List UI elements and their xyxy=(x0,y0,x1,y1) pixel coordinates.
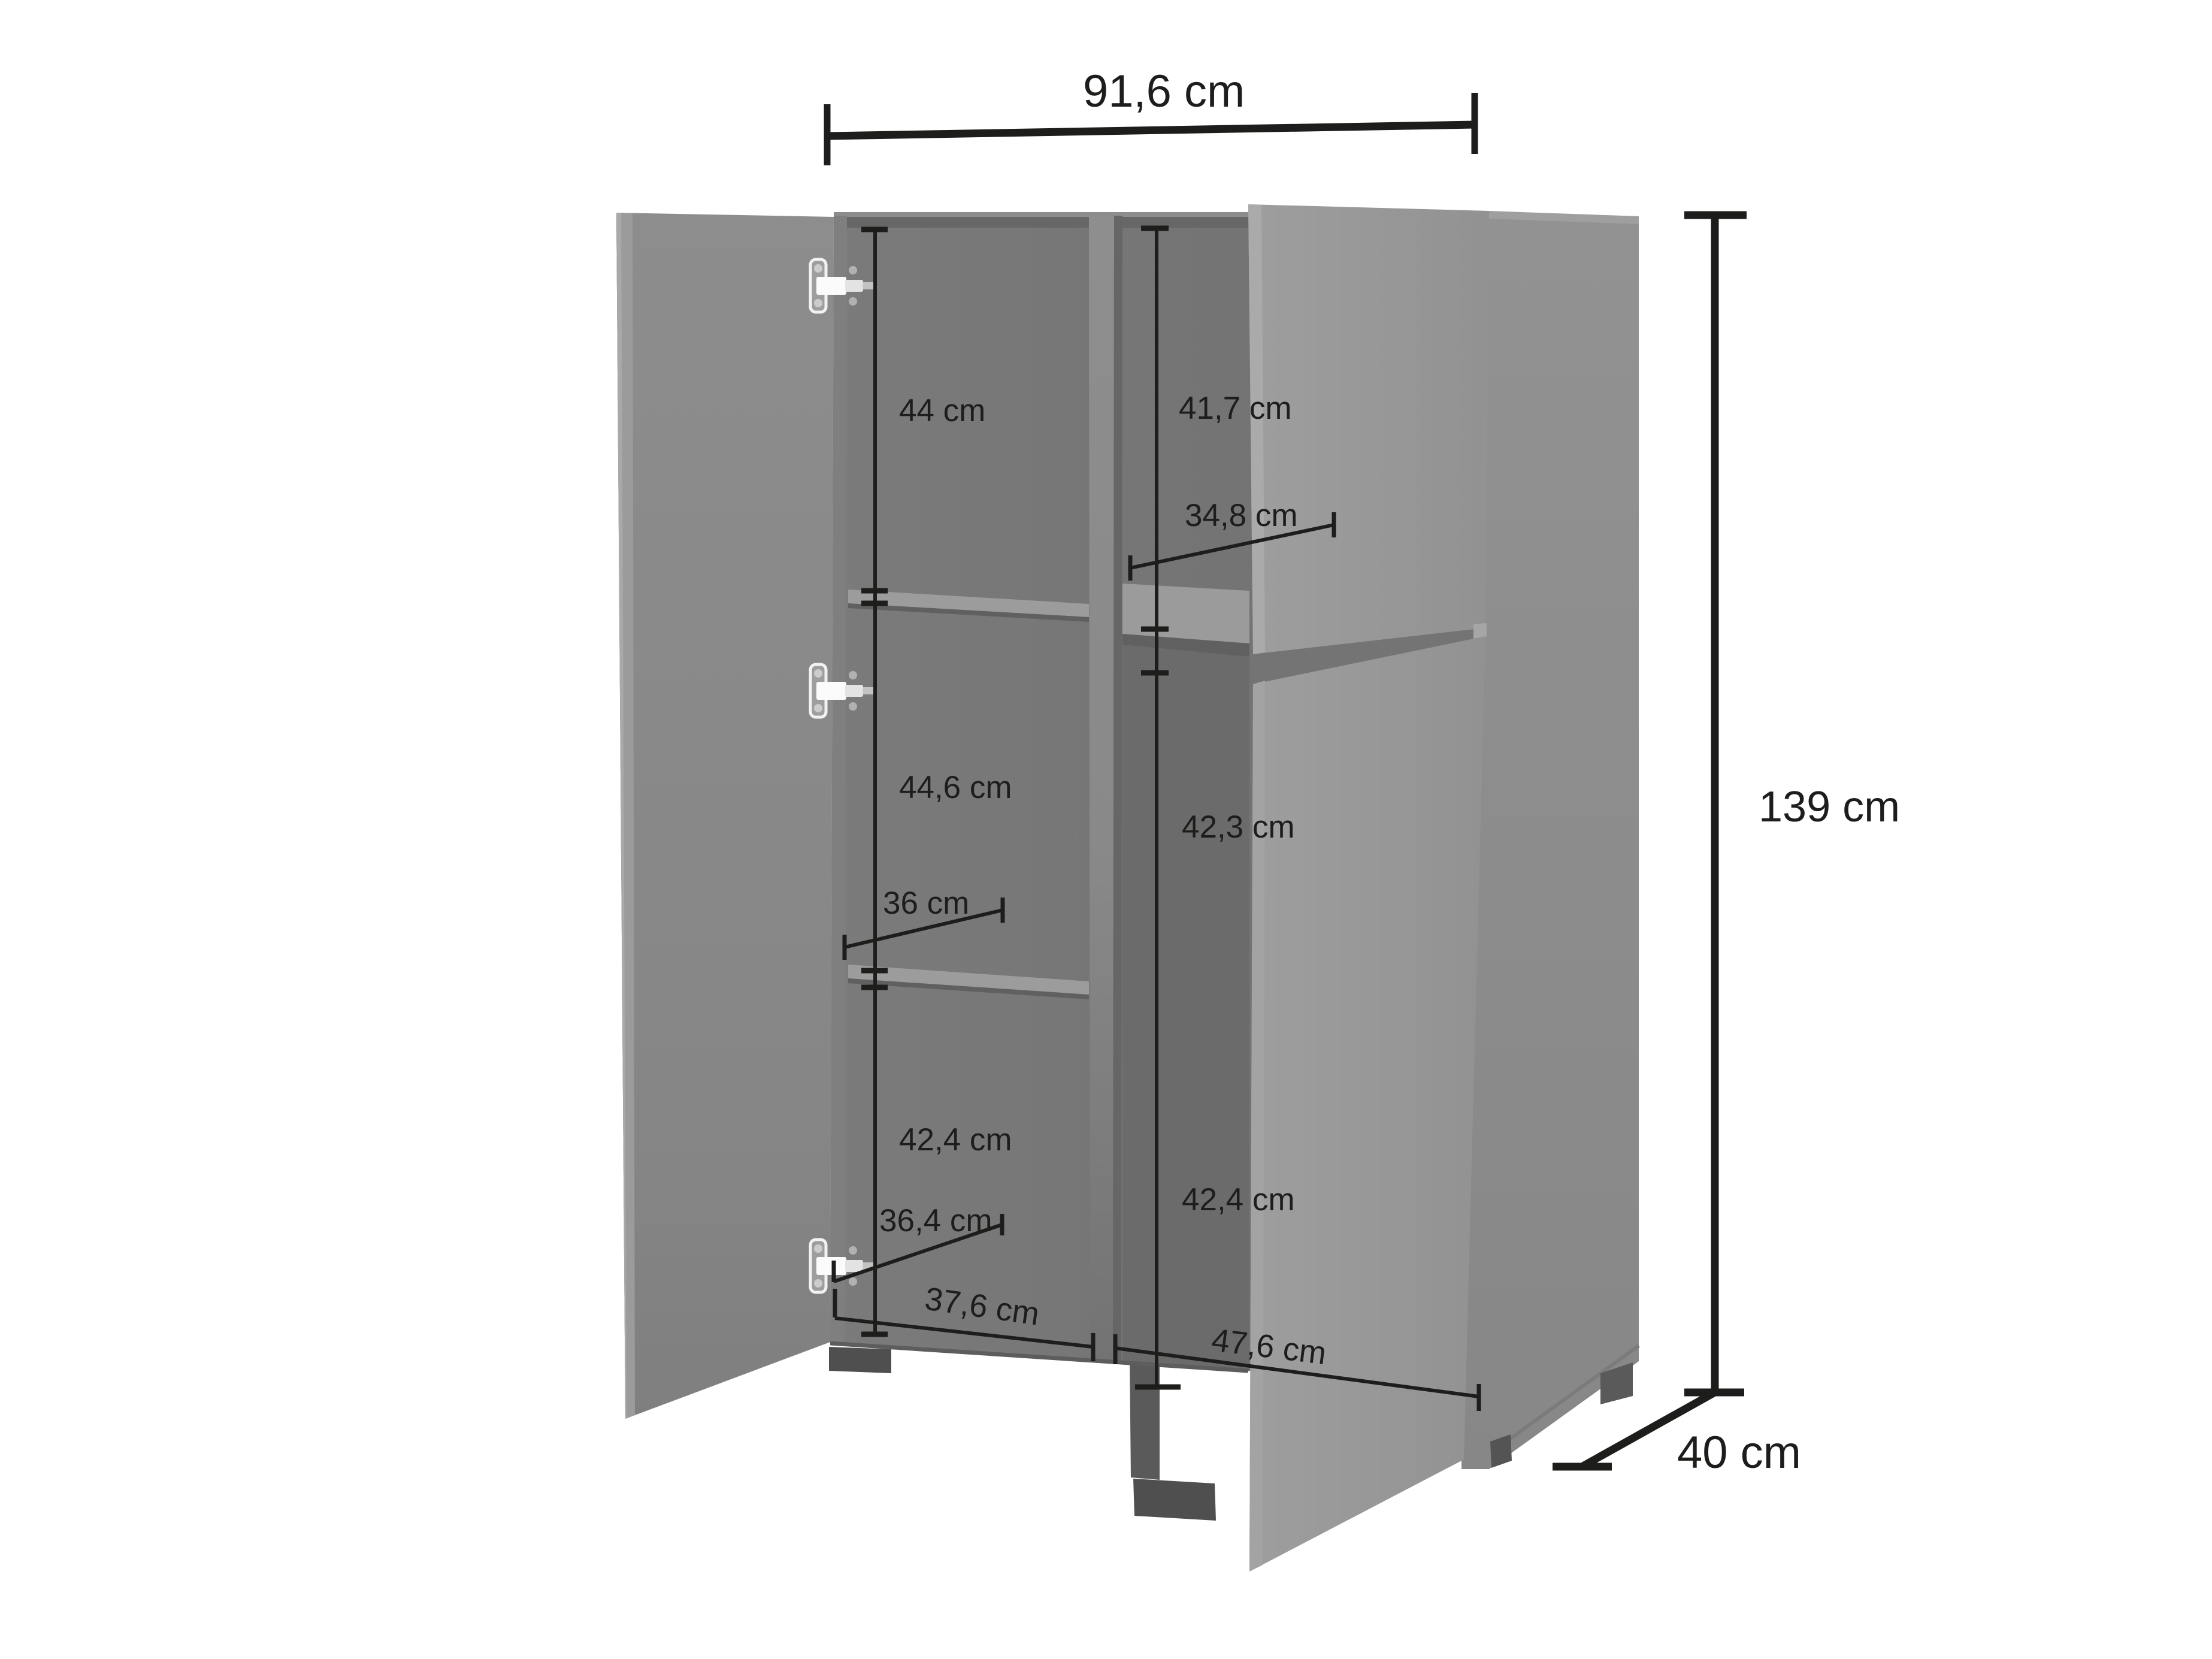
svg-text:36 cm: 36 cm xyxy=(883,886,969,921)
svg-text:34,8 cm: 34,8 cm xyxy=(1185,498,1298,533)
svg-text:40 cm: 40 cm xyxy=(1677,1427,1801,1478)
svg-text:36,4 cm: 36,4 cm xyxy=(879,1203,992,1238)
svg-text:42,3 cm: 42,3 cm xyxy=(1182,809,1295,845)
svg-text:44 cm: 44 cm xyxy=(899,393,985,428)
svg-text:42,4 cm: 42,4 cm xyxy=(1182,1182,1295,1217)
svg-text:42,4 cm: 42,4 cm xyxy=(899,1122,1012,1158)
svg-text:139 cm: 139 cm xyxy=(1759,783,1900,831)
svg-text:91,6 cm: 91,6 cm xyxy=(1083,66,1245,117)
svg-text:44,6 cm: 44,6 cm xyxy=(899,770,1012,805)
svg-text:41,7 cm: 41,7 cm xyxy=(1179,391,1292,426)
